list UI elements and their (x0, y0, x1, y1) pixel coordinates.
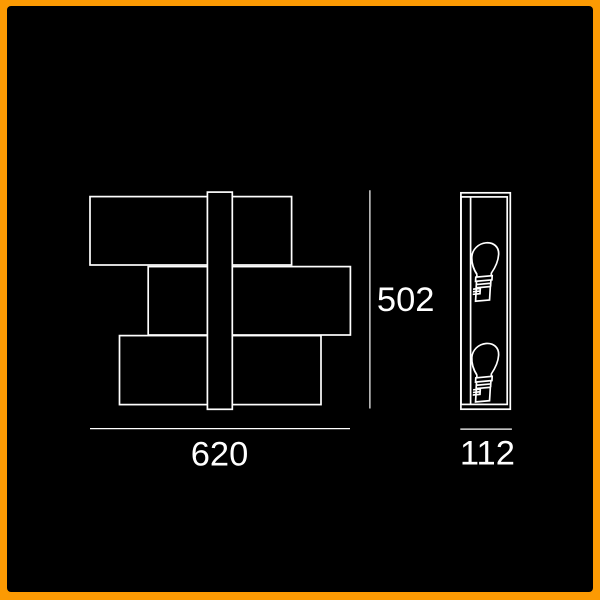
svg-text:620: 620 (191, 435, 249, 473)
svg-text:502: 502 (377, 281, 435, 319)
svg-text:112: 112 (460, 434, 515, 472)
